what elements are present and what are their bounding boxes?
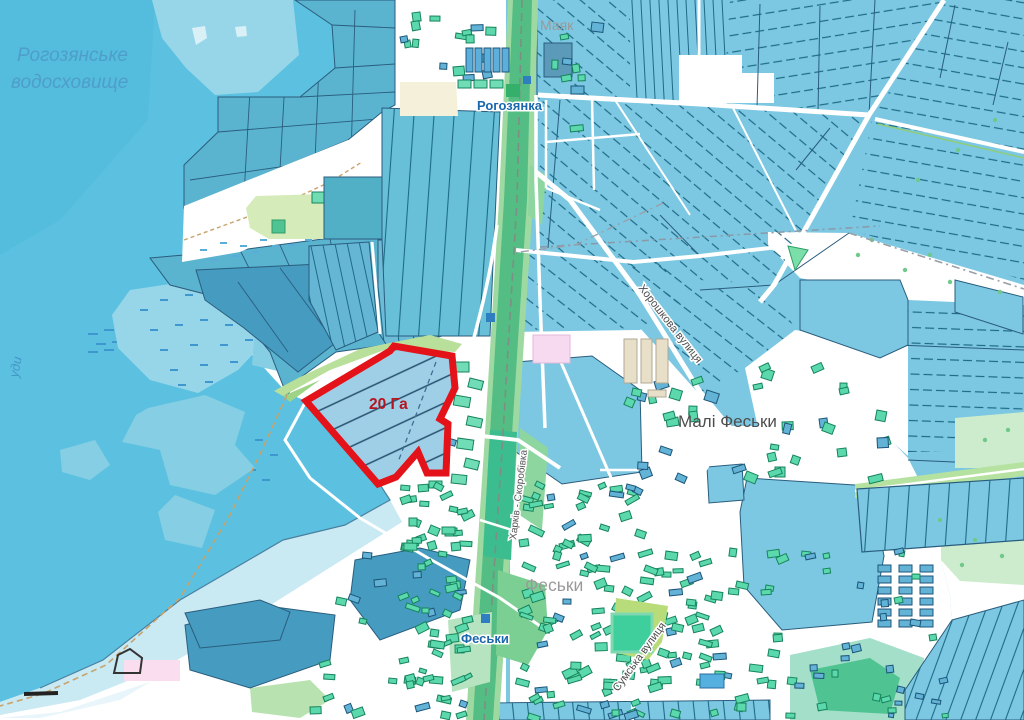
svg-text:20 Га: 20 Га <box>369 396 408 413</box>
svg-text:Рогозянське: Рогозянське <box>17 45 128 66</box>
svg-text:Малі Феськи: Малі Феськи <box>678 412 777 431</box>
svg-text:Феськи: Феськи <box>461 631 509 646</box>
svg-text:Феськи: Феськи <box>525 575 583 595</box>
svg-text:водосховище: водосховище <box>11 72 128 93</box>
svg-text:Маяк: Маяк <box>540 17 574 33</box>
svg-text:Рогозянка: Рогозянка <box>477 98 543 113</box>
